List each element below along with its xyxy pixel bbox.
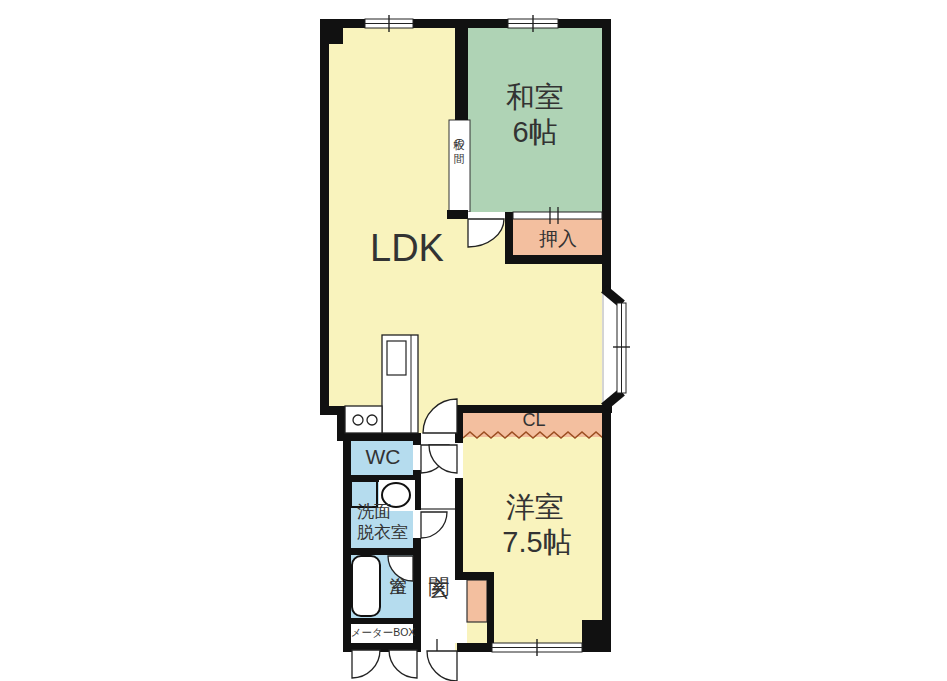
floorplan-drawing [0,0,947,681]
genkan-label: 玄関 [428,560,451,562]
wall-hall-left-1 [413,433,421,445]
wall-oshiire-bottom [505,255,611,264]
wall-alcove-right [487,580,494,652]
youshitsu-size-label: 7.5帖 [472,527,602,559]
bay-stub-bottom [604,392,622,407]
wall-bath-meter [345,618,421,624]
door-senmen [421,512,447,538]
wall-wc-top [345,433,421,441]
washitsu-label: 和室 [475,82,595,114]
stove-burner-icon [367,415,377,425]
wall-ldk-washitsu [455,19,468,120]
wall-hall-right-2 [455,478,463,572]
meter-box-label: メーターBOX [345,627,421,639]
door-meter-left [352,650,380,678]
wall-right-lower [602,405,611,652]
bathroom-label: 浴室 [388,563,407,565]
wall-senmen-bath [345,548,421,555]
genkan-widening [455,580,467,643]
door-meter-right [389,650,417,678]
senmen-label-line2: 脱衣室 [357,524,408,543]
wall-genkan-stub [455,572,494,580]
opening-senmen [413,510,421,538]
stove-burner-icon [353,415,363,425]
wc-label: WC [345,445,421,468]
bathtub-icon [352,556,380,616]
itanoma-label: 板の間 [453,131,465,147]
bay-stub-top [604,289,622,304]
genkan-shoe-cabinet [467,580,487,622]
wall-left-upper [320,19,329,415]
wall-washitsu-stub [447,210,468,219]
pillar-bottom-right [582,620,608,652]
outside-notch [320,415,345,660]
youshitsu-label: 洋室 [475,492,595,524]
door-entrance [427,651,457,681]
wall-right-upper [602,19,611,293]
washitsu-size-label: 6帖 [475,117,595,149]
ldk-label: LDK [345,228,469,270]
floorplan-canvas: LDK 和室 6帖 押入 板の間 CL 洋室 7.5帖 WC 洗面 脱衣室 浴室… [0,0,947,681]
opening-washitsu [468,212,505,219]
bay-window [613,303,630,393]
oshiire-label: 押入 [508,229,608,250]
closet-label: CL [484,411,584,431]
senmen-label-line1: 洗面 [357,503,391,522]
